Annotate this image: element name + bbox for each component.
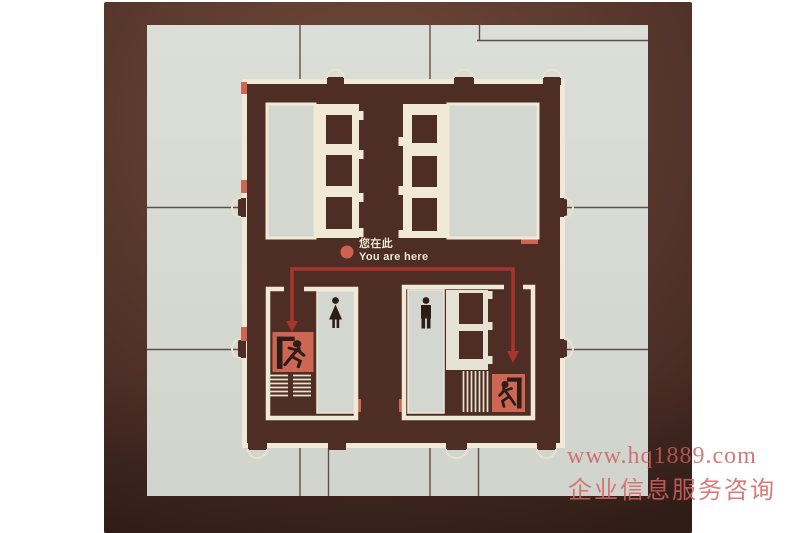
you-are-here-label-zh: 您在此 xyxy=(359,238,428,251)
room-block-top-right xyxy=(399,104,539,238)
you-are-here-dot xyxy=(341,246,354,259)
room-block-bottom-left xyxy=(268,285,356,418)
stairs-right-icon xyxy=(464,371,488,412)
you-are-here-label-en: You are here xyxy=(359,251,428,264)
you-are-here-label: 您在此 You are here xyxy=(359,238,428,264)
room-block-top-left xyxy=(267,104,364,238)
evacuation-map-graphic xyxy=(0,0,799,533)
photo-of-evacuation-map-sign: 您在此 You are here www.hq1889.com 企业信息服务咨询 xyxy=(0,0,799,533)
